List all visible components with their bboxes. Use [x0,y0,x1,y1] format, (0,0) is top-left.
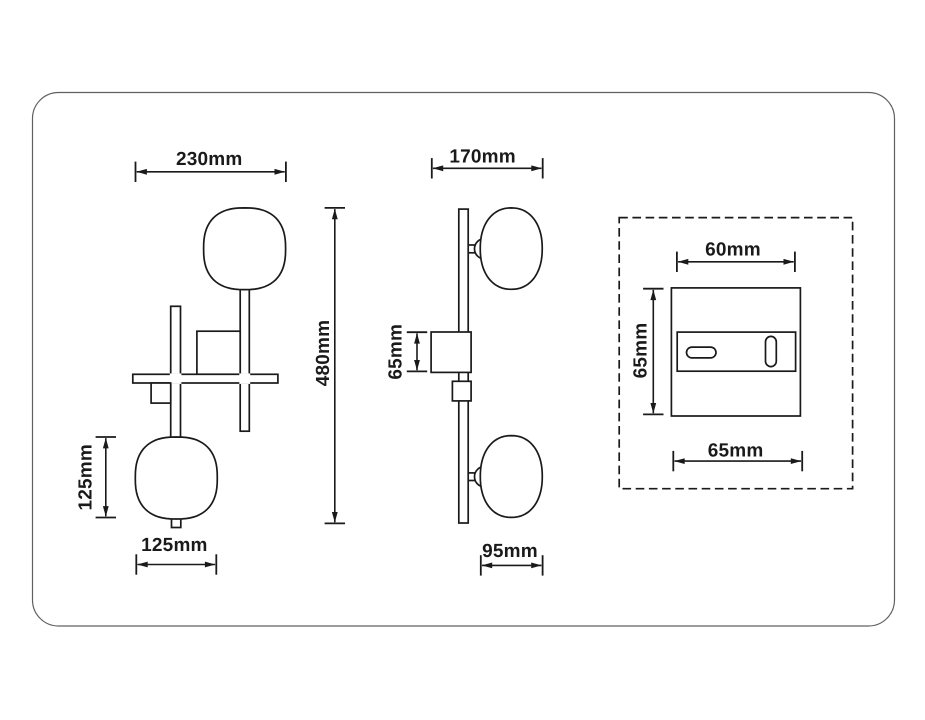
svg-text:95mm: 95mm [482,541,538,562]
svg-text:60mm: 60mm [705,239,761,260]
svg-text:65mm: 65mm [385,324,406,380]
svg-text:230mm: 230mm [176,149,243,170]
svg-text:125mm: 125mm [141,535,208,556]
svg-text:480mm: 480mm [313,320,334,387]
svg-text:170mm: 170mm [449,146,516,167]
svg-text:65mm: 65mm [631,323,652,379]
svg-text:65mm: 65mm [708,441,764,462]
svg-text:125mm: 125mm [75,444,96,511]
